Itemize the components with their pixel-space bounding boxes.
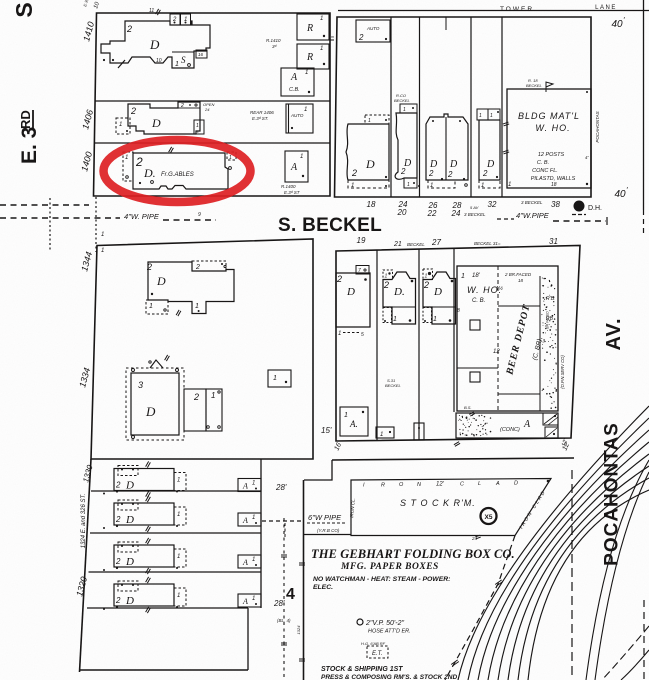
svg-text:2: 2 bbox=[428, 169, 434, 178]
svg-text:1: 1 bbox=[149, 303, 153, 310]
svg-text:AUTO: AUTO bbox=[366, 26, 380, 31]
svg-text:28': 28' bbox=[273, 599, 285, 608]
svg-text:16: 16 bbox=[198, 52, 204, 57]
svg-text:D: D bbox=[151, 116, 161, 130]
svg-text:18: 18 bbox=[367, 200, 376, 209]
svg-text:31: 31 bbox=[549, 237, 558, 246]
svg-text:2: 2 bbox=[115, 515, 121, 524]
svg-text:1: 1 bbox=[252, 481, 255, 487]
svg-text:1: 1 bbox=[481, 183, 484, 189]
svg-text:2: 2 bbox=[336, 274, 342, 284]
svg-text:2: 2 bbox=[482, 169, 488, 178]
svg-text:R.1410: R.1410 bbox=[266, 38, 281, 43]
svg-text:5: 5 bbox=[361, 332, 364, 338]
svg-text:S T O C K R'M.: S T O C K R'M. bbox=[400, 498, 476, 508]
svg-text:A: A bbox=[495, 481, 500, 487]
svg-text:m: m bbox=[331, 35, 334, 39]
svg-text:C. B.: C. B. bbox=[537, 160, 549, 166]
svg-text:C: C bbox=[460, 481, 464, 487]
svg-text:AUTO: AUTO bbox=[290, 113, 304, 118]
svg-text:2: 2 bbox=[400, 167, 406, 176]
svg-text:1: 1 bbox=[252, 596, 255, 602]
svg-text:A: A bbox=[242, 558, 248, 567]
svg-text:4"W.PIPE: 4"W.PIPE bbox=[516, 211, 550, 220]
svg-text:1: 1 bbox=[229, 155, 232, 161]
svg-text:S. BECKEL: S. BECKEL bbox=[278, 215, 382, 236]
svg-text:1: 1 bbox=[175, 61, 179, 68]
svg-text:2: 2 bbox=[126, 24, 132, 34]
svg-text:AV.: AV. bbox=[603, 317, 625, 350]
svg-text:1: 1 bbox=[425, 274, 428, 280]
svg-text:1: 1 bbox=[101, 232, 104, 238]
svg-text:15': 15' bbox=[321, 426, 332, 435]
svg-text:D: D bbox=[433, 286, 442, 298]
svg-text:A: A bbox=[523, 419, 531, 430]
svg-text:2: 2 bbox=[358, 33, 364, 42]
svg-text:1324: 1324 bbox=[296, 625, 301, 635]
svg-text:1: 1 bbox=[393, 316, 397, 323]
svg-text:2: 2 bbox=[383, 280, 389, 290]
svg-text:W. HO.: W. HO. bbox=[535, 123, 570, 133]
svg-text:1: 1 bbox=[101, 248, 104, 254]
svg-text:1: 1 bbox=[490, 113, 493, 119]
svg-text:1: 1 bbox=[368, 118, 371, 124]
svg-text:1: 1 bbox=[252, 557, 255, 563]
svg-text:BLDG MAT'L: BLDG MAT'L bbox=[518, 111, 580, 121]
svg-text:O: O bbox=[399, 482, 404, 488]
svg-text:D: D bbox=[365, 157, 375, 171]
svg-text:2: 2 bbox=[195, 264, 200, 271]
svg-text:E.3ᵈ ST: E.3ᵈ ST bbox=[284, 190, 301, 195]
svg-text:(Y.R.B CO): (Y.R.B CO) bbox=[317, 528, 340, 533]
svg-text:R: R bbox=[306, 23, 313, 34]
svg-text:HOSE ATT'D ER.: HOSE ATT'D ER. bbox=[368, 629, 411, 635]
svg-text:X5: X5 bbox=[485, 514, 493, 521]
svg-text:1: 1 bbox=[125, 155, 128, 161]
svg-text:1: 1 bbox=[177, 554, 180, 560]
svg-text:Fr.G.ABLES: Fr.G.ABLES bbox=[161, 172, 194, 178]
svg-text:D: D bbox=[125, 556, 134, 568]
svg-text:D: D bbox=[125, 595, 134, 607]
svg-text:1: 1 bbox=[177, 478, 180, 484]
svg-text:2: 2 bbox=[135, 155, 143, 169]
svg-text:12: 12 bbox=[493, 349, 500, 355]
svg-text:40: 40 bbox=[611, 19, 623, 30]
svg-text:R.1400: R.1400 bbox=[281, 184, 296, 189]
svg-text:22: 22 bbox=[427, 209, 437, 218]
svg-text:2: 2 bbox=[447, 170, 453, 179]
svg-text:1: 1 bbox=[305, 70, 308, 76]
svg-text:LANE: LANE bbox=[595, 5, 617, 11]
svg-text:1: 1 bbox=[177, 512, 180, 518]
svg-text:S: S bbox=[11, 2, 37, 17]
svg-text:A: A bbox=[242, 516, 248, 525]
svg-text:2: 2 bbox=[351, 168, 357, 178]
svg-text:E.3ᵈ ST.: E.3ᵈ ST. bbox=[252, 116, 269, 121]
svg-text:1: 1 bbox=[508, 182, 511, 188]
svg-text:1: 1 bbox=[433, 316, 437, 323]
svg-text:D: D bbox=[514, 481, 518, 487]
svg-text:21: 21 bbox=[393, 241, 402, 248]
svg-text:STOCK & SHIPPING 1ST: STOCK & SHIPPING 1ST bbox=[321, 666, 403, 673]
svg-text:1: 1 bbox=[385, 274, 388, 280]
svg-text:2: 2 bbox=[193, 392, 199, 402]
svg-text:1: 1 bbox=[273, 375, 277, 382]
svg-text:R'B: R'B bbox=[546, 296, 555, 302]
svg-text:20: 20 bbox=[397, 208, 407, 217]
svg-text:BECKEL: BECKEL bbox=[394, 98, 410, 103]
svg-text:11: 11 bbox=[149, 8, 154, 14]
svg-text:12': 12' bbox=[436, 482, 445, 488]
svg-text:1: 1 bbox=[407, 182, 410, 188]
svg-text:THE GEBHART FOLDING BOX CO.: THE GEBHART FOLDING BOX CO. bbox=[311, 547, 515, 561]
svg-text:2 BR.FACED: 2 BR.FACED bbox=[504, 272, 532, 277]
svg-text:1: 1 bbox=[479, 113, 482, 119]
svg-text:12 POSTS: 12 POSTS bbox=[538, 152, 565, 158]
svg-text:2: 2 bbox=[115, 481, 121, 490]
svg-text:TOWER: TOWER bbox=[500, 6, 534, 13]
svg-text:c: c bbox=[197, 129, 199, 134]
svg-text:E.T.: E.T. bbox=[372, 651, 383, 657]
svg-text:NO WATCHMAN - HEAT: STEAM -: NO WATCHMAN - HEAT: STEAM - POWER: bbox=[313, 576, 450, 583]
svg-text:N: N bbox=[417, 482, 421, 488]
svg-text:5 AV: 5 AV bbox=[470, 205, 479, 210]
svg-text:1324 E. and 326 ST.: 1324 E. and 326 ST. bbox=[81, 494, 87, 549]
svg-text:3 BECKEL: 3 BECKEL bbox=[464, 212, 486, 217]
svg-text:(CONC): (CONC) bbox=[500, 427, 520, 433]
svg-text:1: 1 bbox=[320, 46, 323, 52]
svg-text:D.H.: D.H. bbox=[588, 205, 602, 212]
svg-text:1: 1 bbox=[338, 331, 341, 337]
svg-text:2: 2 bbox=[115, 557, 121, 566]
svg-text:D: D bbox=[125, 514, 134, 526]
svg-text:8: 8 bbox=[457, 308, 460, 314]
svg-text:40: 40 bbox=[614, 189, 626, 200]
svg-text:1: 1 bbox=[304, 107, 307, 113]
svg-text:1: 1 bbox=[252, 515, 255, 521]
svg-text:27: 27 bbox=[431, 238, 441, 247]
svg-text:D: D bbox=[125, 480, 134, 492]
svg-text:1: 1 bbox=[177, 593, 180, 599]
svg-text:RD: RD bbox=[18, 110, 33, 129]
svg-text:1: 1 bbox=[351, 183, 354, 189]
svg-text:24: 24 bbox=[451, 209, 461, 218]
svg-text:2: 2 bbox=[423, 280, 429, 290]
svg-text:19: 19 bbox=[357, 236, 366, 245]
svg-text:D.: D. bbox=[393, 286, 405, 298]
svg-text:2: 2 bbox=[130, 106, 136, 116]
svg-text:1: 1 bbox=[211, 391, 215, 400]
svg-text:CONC FL.: CONC FL. bbox=[532, 168, 558, 174]
svg-text:1: 1 bbox=[403, 107, 406, 113]
svg-text:3 BECKEL: 3 BECKEL bbox=[521, 200, 543, 205]
svg-text:PRESS & COMPOSING RM'S. & STO: PRESS & COMPOSING RM'S. & STOCK 2ND bbox=[321, 674, 457, 680]
svg-text:BR FACED: BR FACED bbox=[546, 311, 550, 329]
svg-text:BECKEL 31=: BECKEL 31= bbox=[474, 241, 501, 246]
svg-text:4: 4 bbox=[286, 586, 295, 603]
svg-text:2: 2 bbox=[180, 103, 184, 109]
svg-text:10: 10 bbox=[156, 58, 162, 64]
svg-text:R: R bbox=[306, 52, 313, 63]
svg-text:1: 1 bbox=[320, 16, 323, 22]
svg-text:A: A bbox=[290, 162, 298, 173]
svg-text:BECKEL: BECKEL bbox=[385, 383, 401, 388]
svg-text:H.G. 6'AB RF: H.G. 6'AB RF bbox=[361, 641, 386, 646]
svg-text:REAR 1406: REAR 1406 bbox=[250, 110, 274, 115]
svg-text:A: A bbox=[242, 482, 248, 491]
svg-text:POCAHONTAS: POCAHONTAS bbox=[595, 111, 600, 142]
svg-text:24: 24 bbox=[204, 107, 210, 112]
svg-text:D: D bbox=[449, 159, 458, 170]
svg-text:9: 9 bbox=[198, 212, 201, 218]
svg-text:32: 32 bbox=[488, 200, 497, 209]
svg-text:2: 2 bbox=[146, 262, 152, 272]
svg-text:1: 1 bbox=[195, 303, 199, 310]
svg-text:B.S.: B.S. bbox=[464, 405, 472, 410]
svg-text:1: 1 bbox=[344, 412, 348, 419]
svg-text:18: 18 bbox=[518, 278, 524, 283]
svg-text:D: D bbox=[149, 37, 160, 52]
svg-text:4': 4' bbox=[585, 155, 589, 160]
svg-text:18: 18 bbox=[551, 182, 557, 188]
svg-text:1½: 1½ bbox=[496, 285, 504, 292]
svg-text:A: A bbox=[242, 597, 248, 606]
svg-text:2"V.P. 50'-2": 2"V.P. 50'-2" bbox=[365, 620, 404, 627]
svg-text:BECKEL: BECKEL bbox=[526, 83, 542, 88]
svg-text:(O.P.N.SERV CO): (O.P.N.SERV CO) bbox=[560, 355, 565, 389]
svg-text:1: 1 bbox=[461, 273, 465, 280]
svg-text:E. 3: E. 3 bbox=[18, 127, 41, 164]
svg-text:L: L bbox=[478, 481, 481, 487]
svg-text:C. B.: C. B. bbox=[472, 298, 485, 304]
svg-text:18': 18' bbox=[472, 273, 481, 279]
svg-text:D: D bbox=[145, 404, 156, 419]
svg-text:MFG. PAPER BOXES: MFG. PAPER BOXES bbox=[340, 562, 439, 572]
svg-text:R: R bbox=[381, 483, 385, 489]
svg-text:BECKEL: BECKEL bbox=[407, 242, 425, 247]
svg-text:6"W PIPE: 6"W PIPE bbox=[308, 513, 342, 522]
svg-text:1: 1 bbox=[119, 122, 122, 128]
svg-text:D: D bbox=[346, 286, 355, 298]
svg-text:1: 1 bbox=[430, 183, 433, 189]
svg-text:1: 1 bbox=[380, 432, 383, 438]
svg-text:2: 2 bbox=[115, 596, 121, 605]
svg-text:1: 1 bbox=[300, 154, 303, 160]
svg-text:C.B.: C.B. bbox=[289, 87, 300, 93]
svg-text:A: A bbox=[290, 72, 298, 83]
svg-text:D: D bbox=[156, 274, 166, 288]
svg-text:D.: D. bbox=[143, 166, 156, 180]
svg-text:POCAHONTAS: POCAHONTAS bbox=[602, 422, 623, 566]
svg-text:ELEC.: ELEC. bbox=[313, 584, 333, 591]
svg-text:38: 38 bbox=[551, 200, 560, 209]
svg-text:3: 3 bbox=[138, 380, 143, 390]
svg-text:28': 28' bbox=[275, 483, 287, 492]
svg-text:4"W. PIPE: 4"W. PIPE bbox=[124, 212, 160, 221]
svg-text:S: S bbox=[181, 55, 186, 65]
svg-text:A.: A. bbox=[349, 419, 358, 429]
